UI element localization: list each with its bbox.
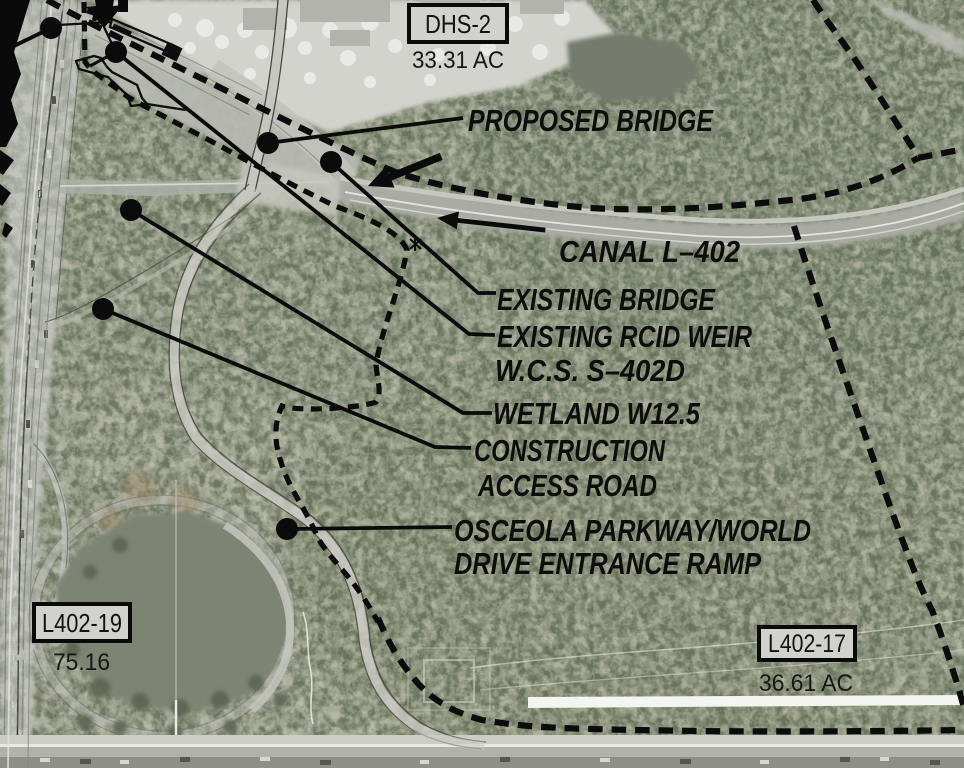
svg-text:CONSTRUCTION: CONSTRUCTION <box>474 433 665 468</box>
svg-text:EXISTING RCID WEIR: EXISTING RCID WEIR <box>497 319 752 354</box>
svg-text:L402-19: L402-19 <box>42 608 122 638</box>
svg-text:L402-17: L402-17 <box>768 630 846 658</box>
svg-text:CANAL L–402: CANAL L–402 <box>559 234 740 269</box>
svg-text:W.C.S. S–402D: W.C.S. S–402D <box>495 353 685 388</box>
svg-text:WETLAND W12.5: WETLAND W12.5 <box>493 396 701 431</box>
svg-text:PROPOSED BRIDGE: PROPOSED BRIDGE <box>468 103 714 138</box>
svg-text:36.61 AC: 36.61 AC <box>759 670 853 697</box>
svg-text:75.16: 75.16 <box>53 649 110 676</box>
svg-text:OSCEOLA PARKWAY/WORLD: OSCEOLA PARKWAY/WORLD <box>454 513 811 548</box>
svg-text:33.31 AC: 33.31 AC <box>412 47 504 74</box>
svg-text:EXISTING BRIDGE: EXISTING BRIDGE <box>497 282 716 317</box>
svg-text:ACCESS ROAD: ACCESS ROAD <box>477 468 657 503</box>
svg-text:DHS-2: DHS-2 <box>425 9 491 39</box>
svg-text:DRIVE ENTRANCE RAMP: DRIVE ENTRANCE RAMP <box>454 546 761 581</box>
